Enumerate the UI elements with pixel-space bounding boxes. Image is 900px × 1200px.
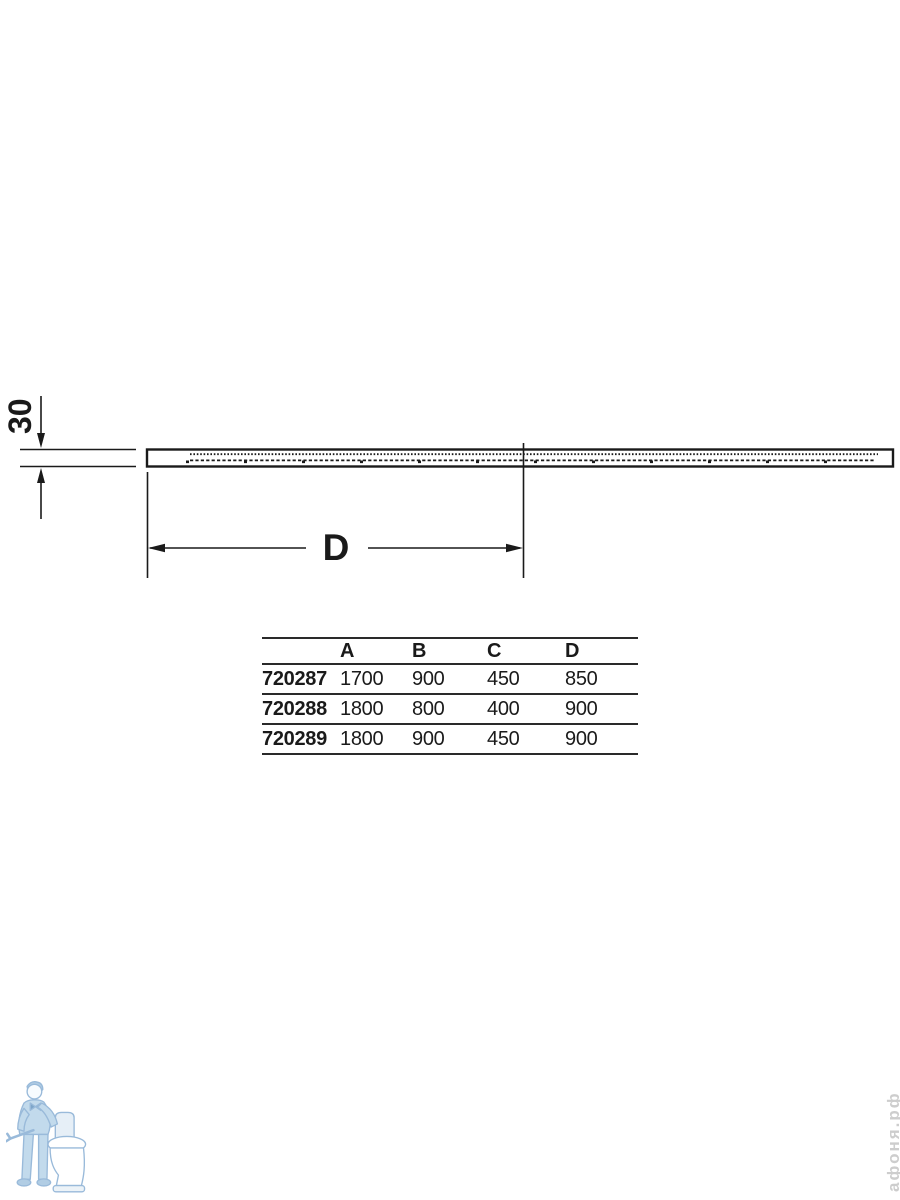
value-a: 1700	[340, 668, 412, 691]
value-d: 900	[565, 728, 638, 751]
thickness-dimension: 30	[2, 396, 136, 519]
article-number: 720289	[262, 728, 340, 751]
value-d: 900	[565, 698, 638, 721]
value-a: 1800	[340, 698, 412, 721]
header-a: A	[340, 640, 412, 663]
arrow-up-icon	[37, 468, 45, 483]
value-b: 900	[412, 668, 487, 691]
tray-profile	[147, 450, 893, 467]
spec-table: A B C D 720287 1700 900 450 850 720288 1…	[262, 637, 638, 755]
table-row: 720287 1700 900 450 850	[262, 665, 638, 695]
value-a: 1800	[340, 728, 412, 751]
diagram-page: 30 D A B C D 720287 1700 900 450 850	[0, 0, 900, 1200]
arrow-down-icon	[37, 433, 45, 448]
plumber-toilet-logo-icon	[6, 1078, 90, 1196]
site-watermark: афоня.рф	[884, 1091, 900, 1192]
header-b: B	[412, 640, 487, 663]
value-b: 900	[412, 728, 487, 751]
header-d: D	[565, 640, 638, 663]
value-d: 850	[565, 668, 638, 691]
arrow-right-icon	[506, 544, 523, 552]
header-c: C	[487, 640, 565, 663]
arrow-left-icon	[148, 544, 165, 552]
article-number: 720287	[262, 668, 340, 691]
width-label: D	[323, 527, 350, 568]
dimension-drawing: 30 D	[0, 0, 900, 1200]
tray-outline	[147, 450, 893, 467]
article-number: 720288	[262, 698, 340, 721]
value-c: 450	[487, 668, 565, 691]
spec-table-header-row: A B C D	[262, 639, 638, 665]
thickness-label: 30	[2, 398, 38, 434]
table-row: 720288 1800 800 400 900	[262, 695, 638, 725]
value-c: 450	[487, 728, 565, 751]
value-b: 800	[412, 698, 487, 721]
plumber-icon	[6, 1082, 57, 1186]
value-c: 400	[487, 698, 565, 721]
table-row: 720289 1800 900 450 900	[262, 725, 638, 755]
